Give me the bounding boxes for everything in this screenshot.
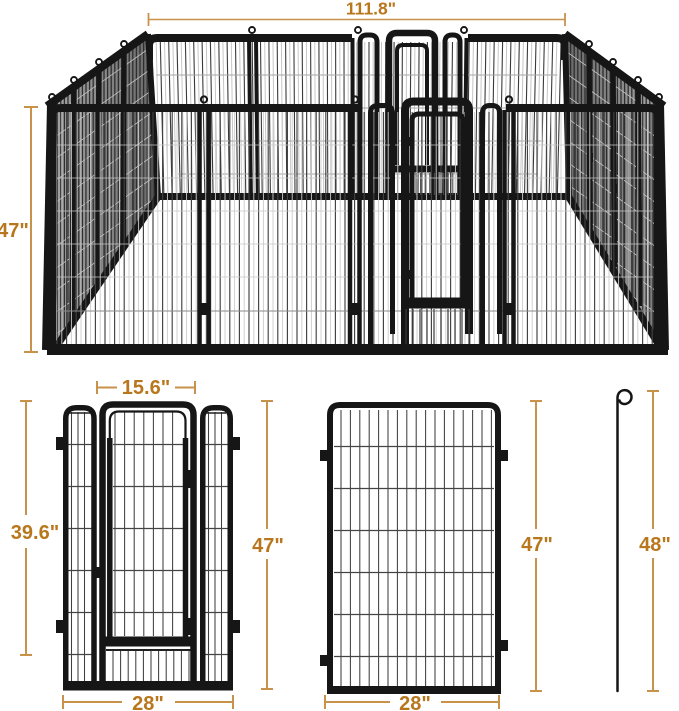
svg-text:28": 28": [399, 693, 431, 711]
svg-text:48": 48": [639, 534, 671, 556]
svg-text:47": 47": [252, 535, 284, 557]
svg-text:47": 47": [0, 220, 29, 242]
svg-text:39.6": 39.6": [11, 522, 59, 544]
svg-text:111.8": 111.8": [346, 0, 396, 19]
svg-text:28": 28": [132, 693, 164, 711]
svg-text:15.6": 15.6": [122, 377, 170, 399]
svg-text:47": 47": [521, 534, 553, 556]
